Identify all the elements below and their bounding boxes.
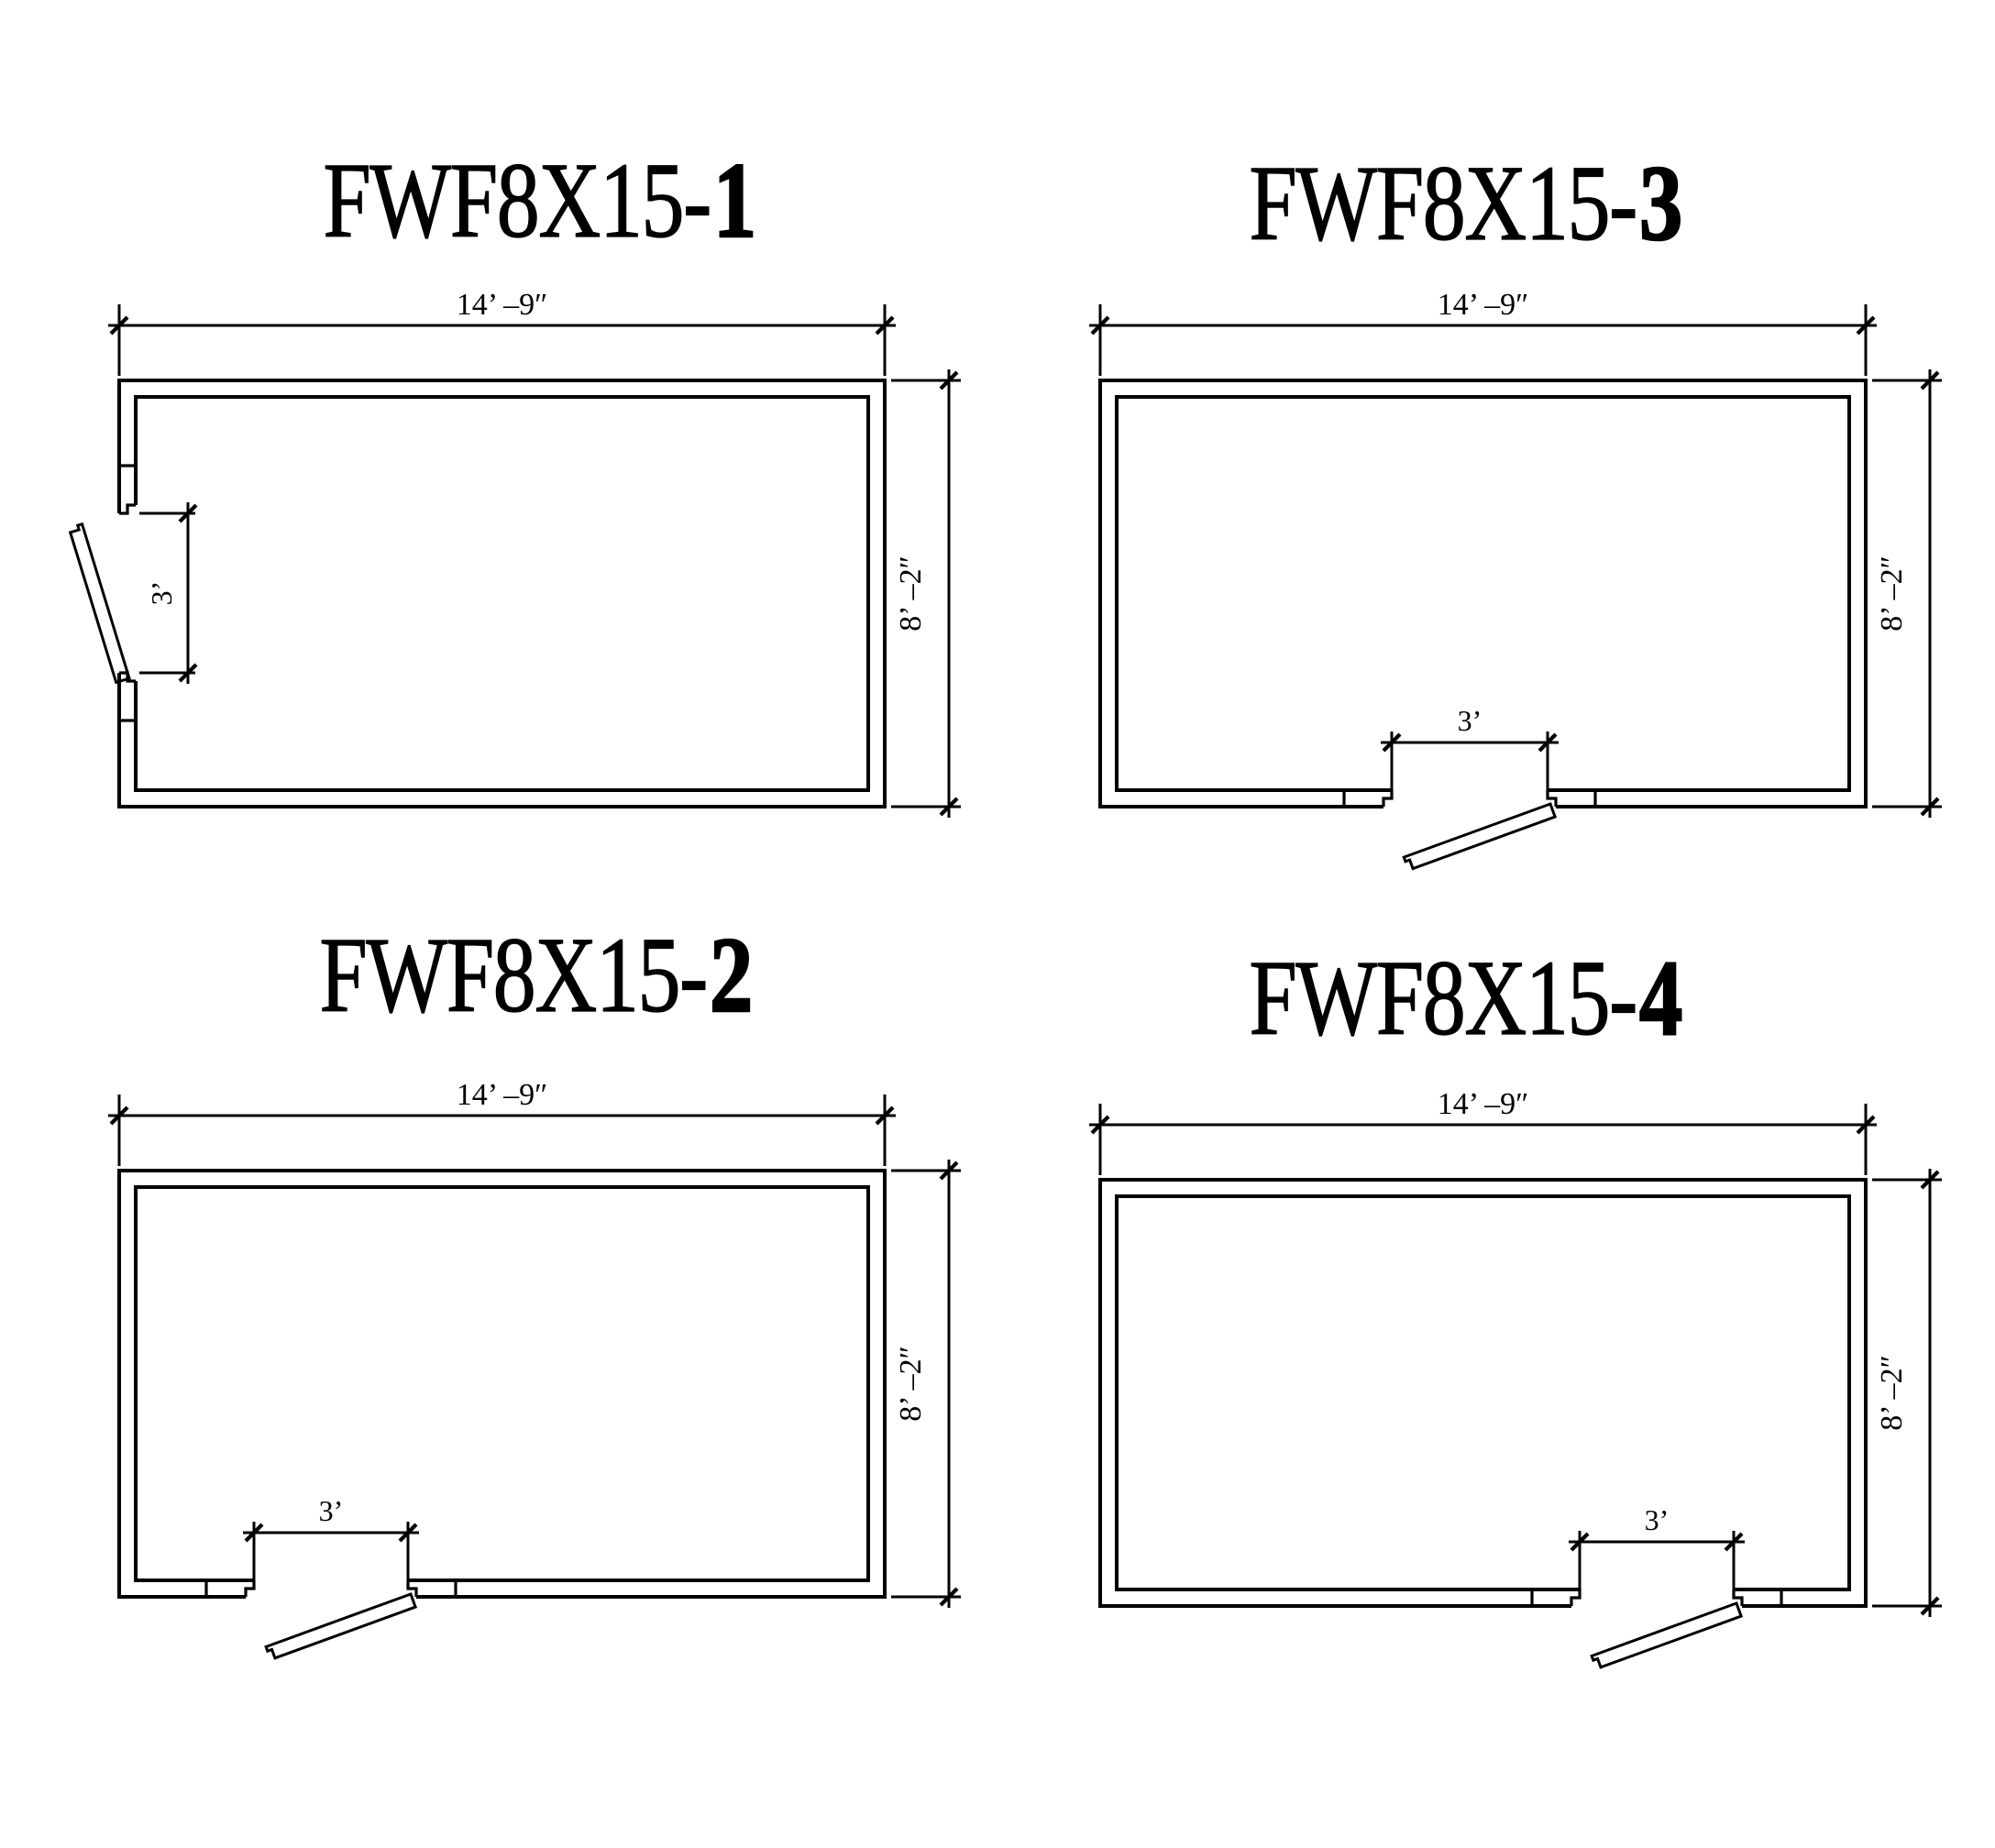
plan-title-number: 4 xyxy=(1637,938,1681,1058)
plan-title-prefix: FWF8X15- xyxy=(1249,143,1637,263)
door-leaf xyxy=(266,1594,415,1658)
width-dimension: 14’ –9″ xyxy=(1089,288,1877,376)
height-dimension: 8’ –2″ xyxy=(891,369,961,818)
plan-title-2: FWF8X15-2 xyxy=(319,921,751,1029)
inner-wall xyxy=(136,1187,868,1580)
door-width-label: 3’ xyxy=(319,1494,344,1527)
plan-title-number: 3 xyxy=(1637,143,1681,263)
width-dimension: 14’ –9″ xyxy=(108,288,896,376)
height-dimension: 8’ –2″ xyxy=(891,1160,961,1608)
door-jamb-notch xyxy=(119,505,136,513)
door-leaf xyxy=(71,524,129,683)
door-leaf-outline xyxy=(1404,804,1555,869)
height-dimension-label: 8’ –2″ xyxy=(894,555,928,631)
floor-plan-drawing-4: 14’ –9″8’ –2″3’ xyxy=(1036,1074,1962,1716)
wall-outline xyxy=(119,1171,885,1597)
outer-wall xyxy=(1100,1180,1866,1606)
plan-title-4: FWF8X15-4 xyxy=(1249,944,1681,1052)
door-width-dimension: 3’ xyxy=(139,502,196,684)
width-dimension: 14’ –9″ xyxy=(108,1078,896,1166)
door-leaf-outline xyxy=(266,1594,415,1658)
outer-wall xyxy=(119,1171,885,1597)
door-width-dimension: 3’ xyxy=(1569,1503,1745,1591)
wall-outline xyxy=(1100,1180,1866,1606)
door-width-dimension: 3’ xyxy=(243,1494,419,1582)
floor-plan-drawing-3: 14’ –9″8’ –2″3’ xyxy=(1036,275,1962,917)
door-leaf xyxy=(1592,1603,1741,1667)
height-dimension-label: 8’ –2″ xyxy=(1875,555,1909,631)
plan-title-prefix: FWF8X15- xyxy=(319,915,707,1035)
plan-title-1: FWF8X15-1 xyxy=(323,147,755,255)
door-width-label: 3’ xyxy=(1645,1503,1670,1536)
door-width-label: 3’ xyxy=(145,581,178,606)
plan-title-3: FWF8X15-3 xyxy=(1249,149,1681,258)
height-dimension: 8’ –2″ xyxy=(1872,369,1942,818)
height-dimension-label: 8’ –2″ xyxy=(894,1346,928,1421)
inner-wall xyxy=(136,397,868,790)
width-dimension-label: 14’ –9″ xyxy=(457,288,547,322)
wall-outline xyxy=(119,380,885,807)
door-jamb-notch xyxy=(1383,790,1392,807)
floor-plan-drawing-1: 14’ –9″8’ –2″3’ xyxy=(55,275,981,917)
plan-title-prefix: FWF8X15- xyxy=(1249,938,1637,1058)
door-leaf-outline xyxy=(71,524,129,683)
width-dimension-label: 14’ –9″ xyxy=(1438,1087,1528,1121)
door-jamb-notch xyxy=(1571,1589,1580,1606)
outer-wall xyxy=(119,380,885,807)
plan-title-number: 2 xyxy=(707,915,752,1035)
plan-title-prefix: FWF8X15- xyxy=(323,140,711,260)
plan-title-number: 1 xyxy=(711,140,755,260)
height-dimension: 8’ –2″ xyxy=(1872,1169,1942,1617)
height-dimension-label: 8’ –2″ xyxy=(1875,1355,1909,1430)
door-jamb-notch xyxy=(246,1580,254,1597)
door-leaf xyxy=(1404,804,1555,869)
width-dimension-label: 14’ –9″ xyxy=(1438,288,1528,322)
door-width-label: 3’ xyxy=(1458,704,1482,737)
width-dimension-label: 14’ –9″ xyxy=(457,1078,547,1112)
floor-plan-drawing-2: 14’ –9″8’ –2″3’ xyxy=(55,1065,981,1707)
width-dimension: 14’ –9″ xyxy=(1089,1087,1877,1175)
door-width-dimension: 3’ xyxy=(1381,704,1559,792)
door-leaf-outline xyxy=(1592,1603,1741,1667)
inner-wall xyxy=(1117,1196,1849,1589)
inner-wall xyxy=(1117,397,1849,790)
